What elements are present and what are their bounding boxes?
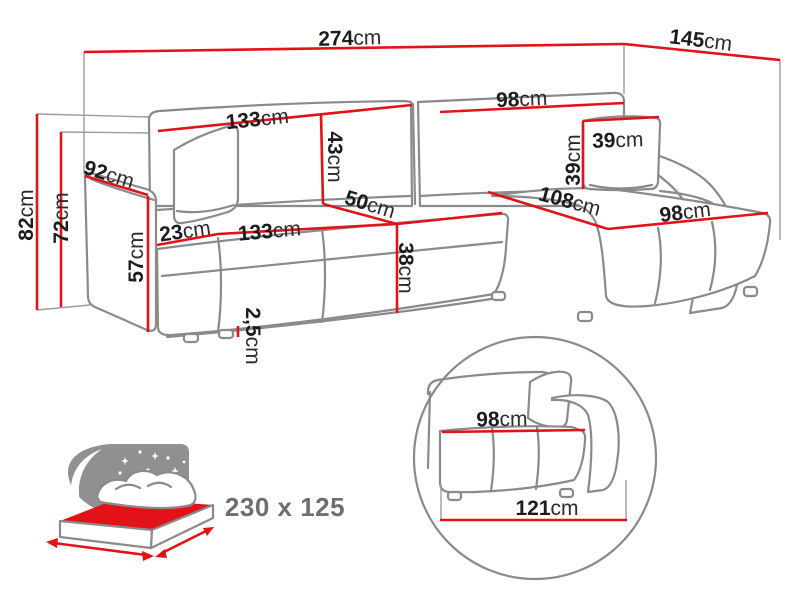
dim-total-width: 274cm bbox=[318, 26, 382, 51]
dim-chaise-depth: 145cm bbox=[668, 25, 733, 56]
dim-pillow-height: 39cm bbox=[562, 134, 585, 185]
detail-seat bbox=[440, 426, 585, 492]
dim-leg-height: 2,5cm bbox=[241, 307, 264, 364]
dim-pillow-width: 39cm bbox=[592, 128, 644, 153]
detail-leg bbox=[448, 492, 461, 500]
dim-backrest-height: 43cm bbox=[323, 131, 346, 182]
sofa-leg bbox=[578, 312, 592, 321]
detail-zoom-circle: 98cm 121cm bbox=[414, 337, 656, 579]
back-pillow-right bbox=[583, 116, 660, 190]
sofa-leg bbox=[744, 287, 757, 296]
dim-detail-seat-width: 98cm bbox=[476, 408, 528, 432]
sofa-dimension-diagram: 274cm 145cm 98cm 133cm 43cm 39cm 39cm 92… bbox=[0, 0, 800, 600]
sleeping-function-bed-icon bbox=[46, 444, 214, 561]
sofa-leg bbox=[492, 292, 505, 300]
dim-total-height: 82cm bbox=[15, 189, 38, 240]
dim-detail-module-width: 121cm bbox=[515, 497, 578, 520]
dim-arm-height: 57cm bbox=[125, 231, 148, 282]
sleeping-area-label: 230 x 125 bbox=[225, 492, 345, 522]
sofa-leg bbox=[184, 334, 198, 342]
dim-seat-height: 38cm bbox=[394, 242, 417, 293]
sofa-leg bbox=[219, 330, 233, 338]
dim-back-right-width: 98cm bbox=[496, 87, 548, 112]
detail-leg bbox=[560, 489, 573, 497]
dim-seat-back-height: 72cm bbox=[50, 192, 73, 243]
diagram-canvas: 274cm 145cm 98cm 133cm 43cm 39cm 39cm 92… bbox=[0, 0, 800, 600]
